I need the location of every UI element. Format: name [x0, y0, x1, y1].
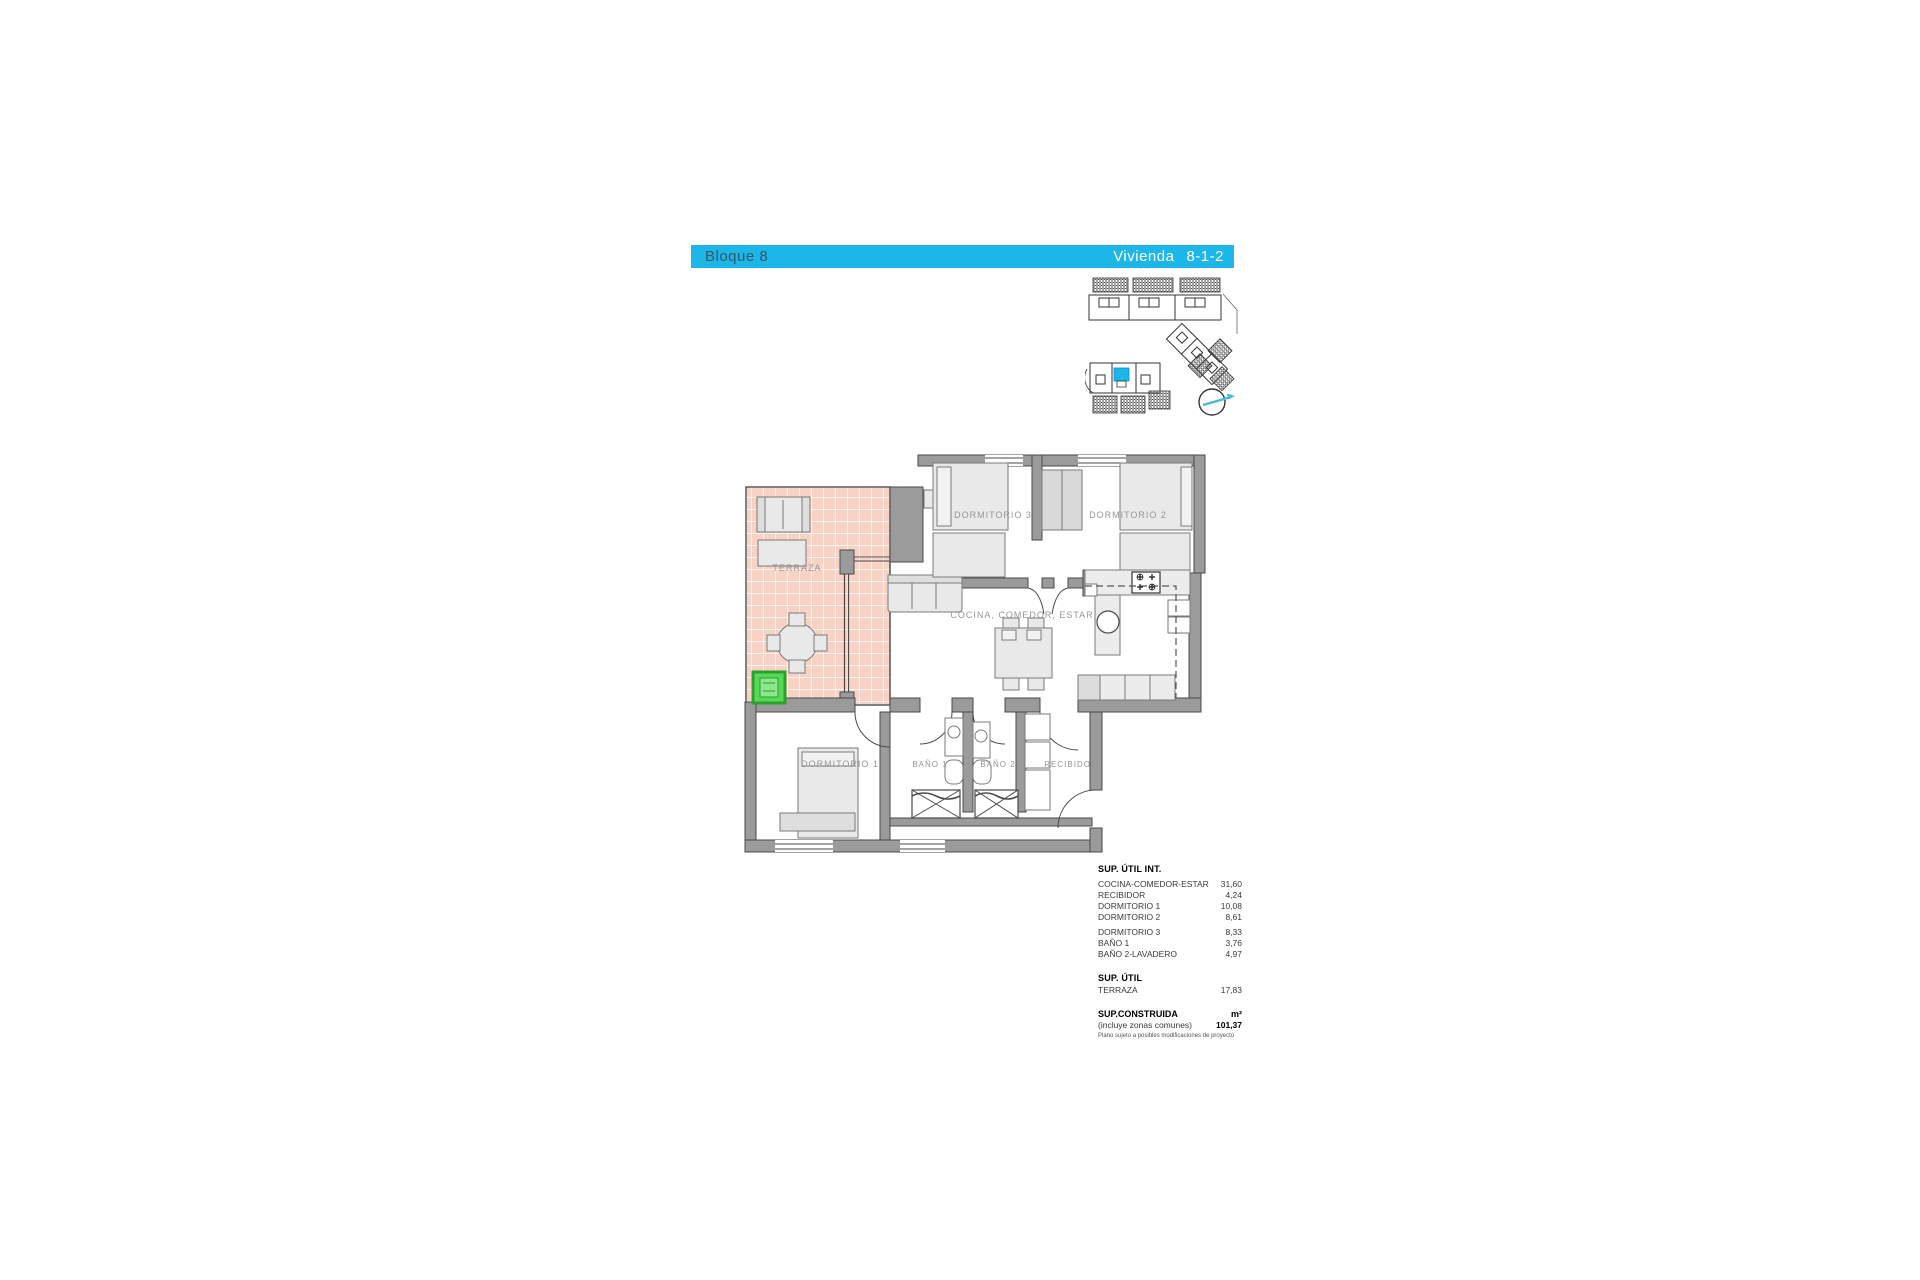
closet [1025, 770, 1050, 810]
table-row: DORMITORIO 3 8,33 [1098, 927, 1242, 938]
table-row: DORMITORIO 1 10,08 [1098, 901, 1242, 912]
kitchen-counter [1100, 675, 1175, 700]
dwelling-label: Vivienda [1113, 248, 1174, 265]
room-label-recibidor: RECIBIDOR [1044, 760, 1097, 769]
disclaimer: Plano sujeto a posibles modificaciones d… [1098, 1033, 1242, 1039]
north-arrow-icon [1199, 389, 1235, 415]
areas-subtitle: SUP. ÚTIL [1098, 973, 1242, 983]
room-label-terraza: TERRAZA [772, 563, 821, 573]
kitchen-counter [1078, 675, 1100, 700]
floor-plan: TERRAZA DORMITORIO 3 DORMITORIO 2 COCINA… [740, 450, 1245, 870]
dwelling-title: Vivienda 8-1-2 [1113, 248, 1224, 265]
toilet [945, 760, 963, 784]
table-row: DORMITORIO 2 8,61 [1098, 912, 1242, 923]
areas-table: SUP. ÚTIL INT. COCINA-COMEDOR-ESTAR 31,6… [1098, 864, 1242, 1039]
table-row: BAÑO 1 3,76 [1098, 938, 1242, 949]
table-row: RECIBIDOR 4,24 [1098, 890, 1242, 901]
plan-sheet: Bloque 8 Vivienda 8-1-2 [0, 0, 1920, 1280]
table-row: COCINA-COMEDOR-ESTAR 31,60 [1098, 879, 1242, 890]
site-bottom-terraces [1093, 391, 1170, 413]
kitchen-sink [1097, 611, 1119, 633]
terrace-green-unit [753, 672, 785, 703]
site-key-plan [1085, 272, 1275, 432]
room-label-dormitorio1: DORMITORIO 1 [801, 759, 879, 769]
site-top-units [1089, 295, 1221, 320]
table-row: TERRAZA 17,83 [1098, 985, 1242, 996]
highlighted-unit [1114, 368, 1129, 381]
room-label-dormitorio2: DORMITORIO 2 [1089, 510, 1167, 520]
built-area-header: SUP.CONSTRUIDA m² [1098, 1009, 1242, 1020]
terrace-round-table [777, 623, 817, 663]
bed [933, 533, 1005, 577]
title-bar: Bloque 8 Vivienda 8-1-2 [691, 245, 1234, 268]
room-label-dormitorio3: DORMITORIO 3 [954, 510, 1032, 520]
site-top-terraces [1093, 278, 1220, 292]
table-row: BAÑO 2-LAVADERO 4,97 [1098, 949, 1242, 960]
dwelling-number: 8-1-2 [1186, 248, 1224, 265]
built-area-row: (incluye zonas comunes) 101,37 [1098, 1020, 1242, 1031]
room-label-bano2: BAÑO 2 [980, 760, 1015, 769]
room-label-cocina: COCINA, COMEDOR, ESTAR [950, 610, 1093, 620]
room-label-bano1: BAÑO 1 [912, 760, 947, 769]
stove [1132, 572, 1160, 593]
sink [973, 722, 990, 758]
sink [945, 718, 963, 756]
block-title: Bloque 8 [705, 248, 768, 265]
closet [1025, 714, 1050, 740]
areas-title: SUP. ÚTIL INT. [1098, 864, 1242, 874]
dresser [780, 813, 855, 831]
